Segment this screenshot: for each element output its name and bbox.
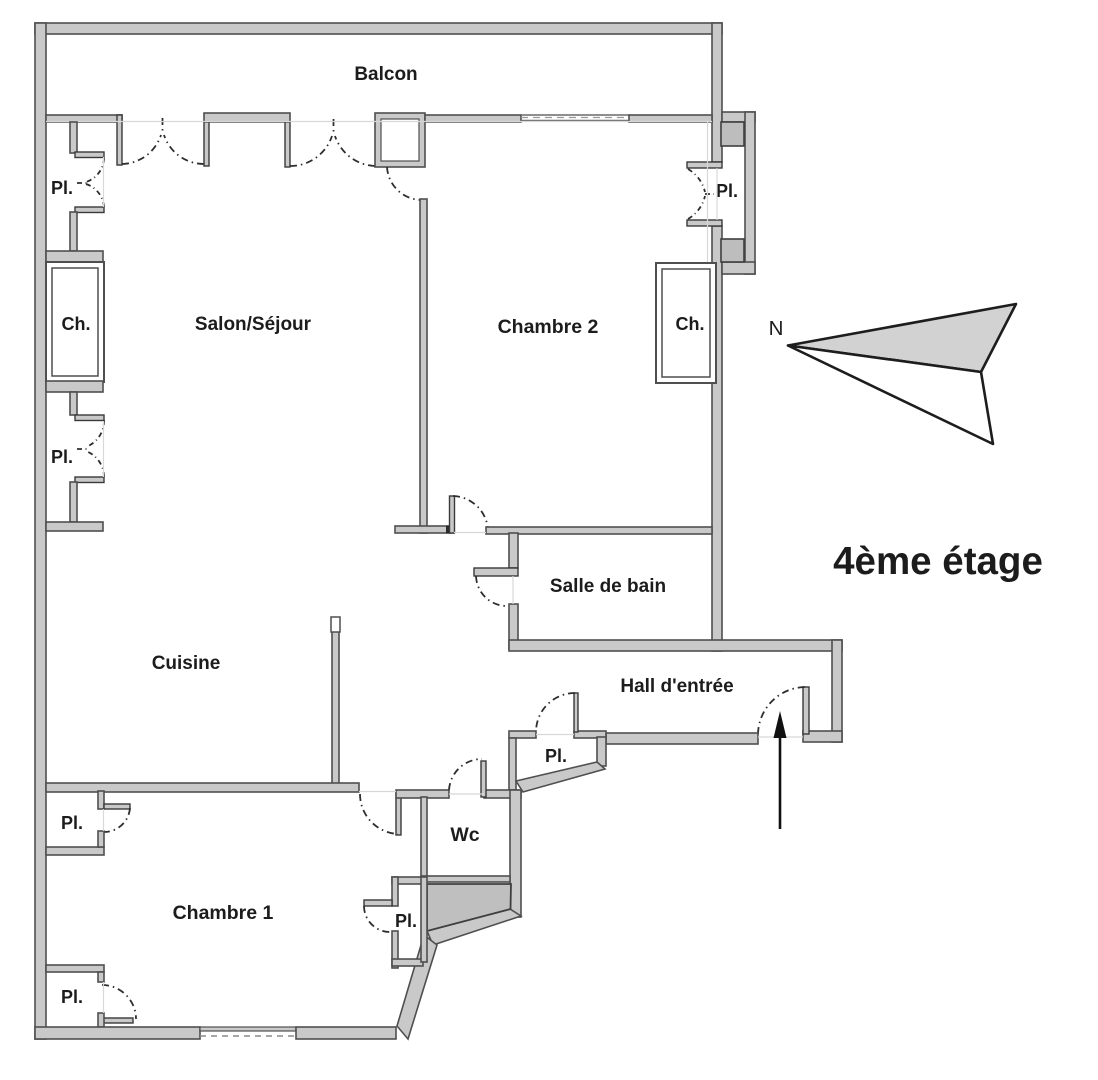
svg-text:Balcon: Balcon	[354, 64, 417, 85]
svg-text:Pl.: Pl.	[716, 181, 738, 201]
svg-text:Pl.: Pl.	[545, 746, 567, 766]
svg-text:Wc: Wc	[450, 824, 479, 846]
svg-text:4ème étage: 4ème étage	[833, 540, 1043, 583]
svg-text:Pl.: Pl.	[395, 911, 417, 931]
svg-text:Hall d'entrée: Hall d'entrée	[620, 676, 733, 697]
svg-text:Cuisine: Cuisine	[152, 653, 221, 674]
svg-text:Chambre 1: Chambre 1	[173, 902, 274, 924]
svg-text:Pl.: Pl.	[61, 813, 83, 833]
svg-text:Pl.: Pl.	[61, 987, 83, 1007]
svg-text:Ch.: Ch.	[62, 314, 91, 334]
svg-text:N: N	[769, 317, 784, 340]
svg-text:Pl.: Pl.	[51, 178, 73, 198]
svg-text:Pl.: Pl.	[51, 447, 73, 467]
svg-text:Salle de bain: Salle de bain	[550, 576, 666, 597]
svg-text:Ch.: Ch.	[676, 314, 705, 334]
svg-text:Chambre 2: Chambre 2	[498, 316, 599, 338]
svg-text:Salon/Séjour: Salon/Séjour	[195, 314, 312, 335]
